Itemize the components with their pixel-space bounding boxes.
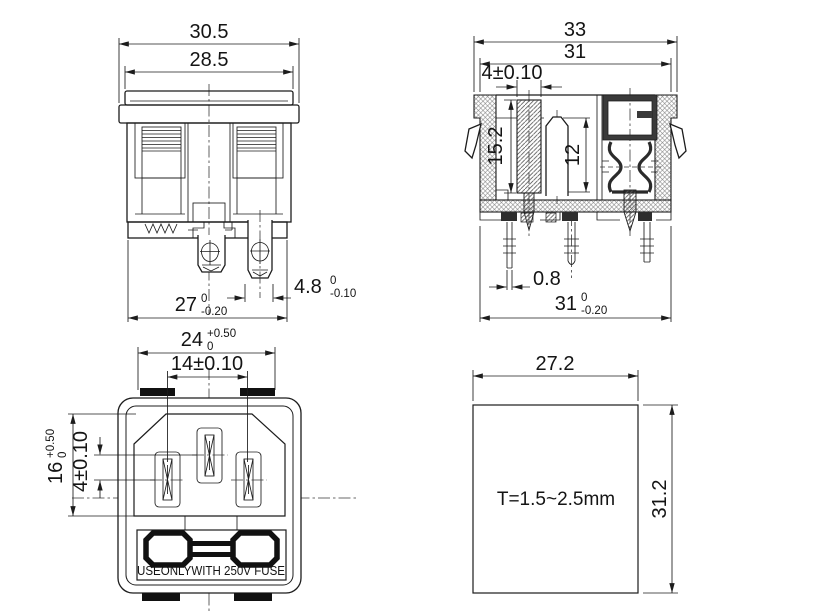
- dim-opening-width-lower-tol: 0: [207, 341, 213, 353]
- dim-opening-height-lower-tol: 0: [57, 452, 69, 458]
- dim-pin-thickness: 0.8: [533, 268, 561, 290]
- technical-drawing-page: 30.5 28.5 27 0 -0.20 4.8 0 -0.10: [0, 0, 813, 615]
- dim-cavity-depth: 15.2: [485, 127, 507, 166]
- dim-cutout-width: 27.2: [536, 353, 575, 375]
- dim-front-lower-width-lower-tol: -0.20: [201, 306, 227, 318]
- dim-front-overall-width: 30.5: [190, 21, 229, 43]
- dim-earth-pin-width: 4±0.10: [481, 62, 542, 84]
- terminal-root: [638, 212, 652, 221]
- dim-opening-width-upper-tol: +0.50: [207, 328, 236, 340]
- panel-thickness-note: T=1.5~2.5mm: [497, 489, 615, 510]
- terminal-root: [501, 212, 517, 221]
- screw-terminal-left: [198, 235, 225, 272]
- dim-earth-pin-offset: 4±0.10: [70, 431, 92, 492]
- base-section: [480, 200, 671, 212]
- dim-front-terminal-width: 4.8: [294, 276, 322, 298]
- dim-pin-pitch: 14±0.10: [171, 353, 243, 375]
- dim-pin-span-lower-tol: -0.20: [581, 305, 607, 317]
- dim-side-overall-width: 33: [564, 19, 586, 41]
- dim-pin-span: 31: [555, 293, 577, 315]
- terminal-root: [562, 212, 578, 221]
- dim-pin-span-upper-tol: 0: [581, 292, 587, 304]
- dim-cutout-height: 31.2: [649, 480, 671, 519]
- dim-contact-height: 12: [562, 144, 584, 166]
- latch-ribs: [142, 131, 181, 152]
- fuse-marking-label: USEONLYWITH 250V FUSE: [137, 563, 285, 578]
- dim-opening-height-upper-tol: +0.50: [45, 429, 57, 458]
- mounting-tab: [140, 388, 175, 396]
- dim-front-terminal-width-lower-tol: -0.10: [330, 288, 356, 300]
- dim-opening-height: 16: [45, 462, 67, 484]
- dim-opening-width: 24: [181, 329, 203, 351]
- latch-ribs: [237, 131, 276, 152]
- mounting-tab: [240, 388, 275, 396]
- clip-rivet-section: [624, 190, 636, 212]
- dim-front-lower-width: 27: [175, 294, 197, 316]
- drawing-canvas: 30.5 28.5 27 0 -0.20 4.8 0 -0.10: [0, 0, 813, 615]
- snap-tab: [142, 593, 180, 601]
- dim-front-lower-width-upper-tol: 0: [201, 293, 207, 305]
- snap-tab: [234, 593, 272, 601]
- dim-side-body-width: 31: [564, 41, 586, 63]
- fuse-holder-notch: [637, 111, 652, 118]
- dim-front-cap-width: 28.5: [190, 49, 229, 71]
- dim-front-terminal-width-upper-tol: 0: [330, 275, 336, 287]
